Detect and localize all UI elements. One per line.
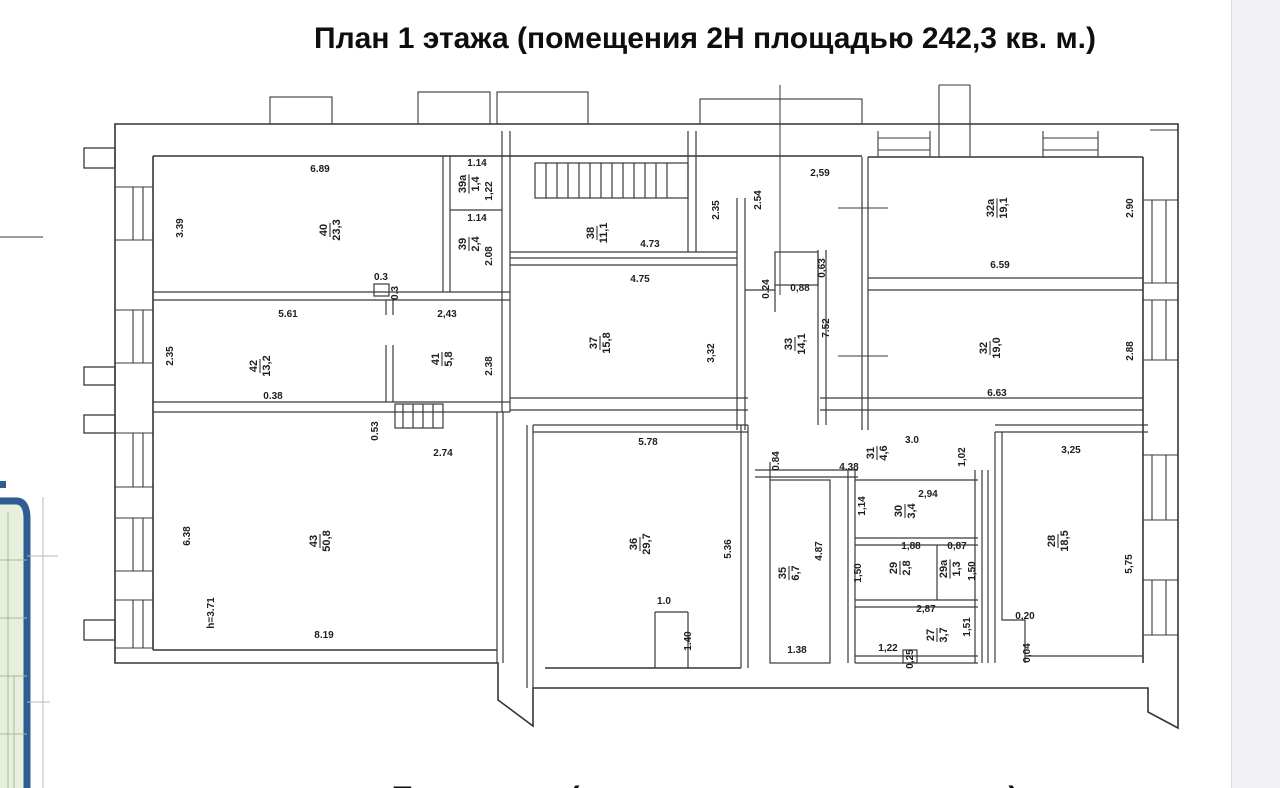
dimension-label: 2,43: [437, 309, 457, 320]
dimension-label: 5,75: [1124, 554, 1135, 574]
svg-text:14,1: 14,1: [796, 333, 808, 354]
svg-text:2,4: 2,4: [470, 235, 482, 251]
dimension-label: 1.0: [657, 596, 671, 607]
dimension-label: 2.74: [433, 448, 453, 459]
window-symbols: [115, 85, 1178, 648]
dimension-label: 4.73: [640, 239, 660, 250]
exterior-walls: [115, 124, 1178, 728]
adjacent-page-fragment: [0, 0, 70, 788]
staircase-hatch: [395, 163, 688, 428]
dimension-label: 0.24: [761, 279, 772, 299]
dimension-label: 5.61: [278, 309, 298, 320]
dimension-label: 5.78: [638, 437, 658, 448]
dimension-label: 6.89: [310, 164, 330, 175]
svg-text:1,4: 1,4: [470, 175, 482, 191]
dimension-label: h=3.71: [206, 597, 217, 629]
room-label: 3314,1: [783, 333, 808, 354]
svg-text:35: 35: [777, 567, 789, 579]
room-label: 356,7: [777, 565, 802, 580]
dimension-label: 0.38: [263, 391, 283, 402]
scanned-floor-plan-page: План 1 этажа (помещения 2Н площадью 242,…: [0, 0, 1280, 788]
dimension-label: 3.0: [905, 435, 919, 446]
svg-text:6,7: 6,7: [790, 565, 802, 580]
svg-text:29: 29: [888, 562, 900, 574]
dimension-label: 0,88: [790, 283, 810, 294]
dimension-label: 0,63: [817, 258, 828, 278]
dimension-label: 2.90: [1125, 198, 1136, 218]
svg-text:3,7: 3,7: [938, 627, 950, 642]
dimension-label: 2.88: [1125, 341, 1136, 361]
svg-text:3,4: 3,4: [906, 502, 918, 518]
dimension-label: 1,50: [853, 563, 864, 583]
svg-text:32а: 32а: [985, 198, 997, 217]
svg-text:18,5: 18,5: [1059, 530, 1071, 551]
dimension-label: 6.38: [182, 526, 193, 546]
room-label: 39а1,4: [457, 174, 482, 194]
room-label: 3219,0: [978, 337, 1003, 358]
room-label: 292,8: [888, 560, 913, 575]
svg-text:5,8: 5,8: [443, 351, 455, 366]
svg-text:23,3: 23,3: [331, 219, 343, 240]
svg-text:39а: 39а: [457, 174, 469, 193]
svg-text:50,8: 50,8: [321, 530, 333, 551]
dimension-label: 1,02: [957, 447, 968, 467]
dimension-label: 0,87: [947, 541, 967, 552]
room-label: 392,4: [457, 235, 482, 251]
dimension-label: 1.40: [683, 631, 694, 651]
room-label: 32а19,1: [985, 197, 1010, 218]
dimension-label: 1.38: [787, 645, 807, 656]
dimension-label: 3,25: [1061, 445, 1081, 456]
dimension-label: 2.35: [165, 346, 176, 366]
dimension-label: 6.63: [987, 388, 1007, 399]
room-label: 4350,8: [308, 530, 333, 551]
dimension-label: 2.54: [753, 190, 764, 210]
svg-text:37: 37: [588, 337, 600, 349]
room-label: 3811,1: [585, 223, 610, 244]
dimension-label: 1,50: [967, 561, 978, 581]
svg-text:19,0: 19,0: [991, 337, 1003, 358]
dimension-label: 1,14: [857, 496, 868, 516]
dimension-label: 1,22: [878, 643, 898, 654]
room-label: 3629,7: [628, 533, 653, 554]
svg-text:40: 40: [318, 224, 330, 236]
svg-text:15,8: 15,8: [601, 332, 613, 353]
dimension-label: 5.36: [723, 539, 734, 559]
dimension-label: 2,59: [810, 168, 830, 179]
dimension-label: 0.3: [390, 286, 401, 300]
svg-text:4,6: 4,6: [878, 445, 890, 460]
dimension-label: 0.3: [374, 272, 388, 283]
room-label: 4023,3: [318, 219, 343, 240]
svg-text:30: 30: [893, 505, 905, 517]
dimension-label: 1.14: [467, 213, 487, 224]
room-label: 29а1,3: [938, 559, 963, 579]
dimension-label: 0,04: [1022, 643, 1033, 663]
svg-text:38: 38: [585, 227, 597, 239]
dimension-label: 1,51: [962, 617, 973, 637]
dimension-label: 3.39: [175, 218, 186, 238]
floor-plan: 4023,339а1,4392,43811,13715,83314,132а19…: [0, 0, 1280, 788]
svg-text:43: 43: [308, 535, 320, 547]
dimension-label: 0,20: [1015, 611, 1035, 622]
room-label: 303,4: [893, 502, 918, 518]
dimension-label: 4.75: [630, 274, 650, 285]
dimension-label: 4.38: [839, 462, 859, 473]
svg-text:29,7: 29,7: [641, 533, 653, 554]
dimension-label: 0,25: [905, 649, 916, 669]
room-label: 415,8: [430, 351, 455, 366]
room-label: 314,6: [865, 445, 890, 460]
dimension-label: 0.53: [370, 421, 381, 441]
svg-text:41: 41: [430, 353, 442, 365]
dimension-label: 1.14: [467, 158, 487, 169]
dimension-labels: 6.893.390.30.31.141,221.142.084.734.752.…: [165, 158, 1136, 669]
room-label: 4213,2: [248, 355, 273, 376]
dimension-label: 2.38: [484, 356, 495, 376]
room-label: 3715,8: [588, 332, 613, 353]
dimension-label: 3,32: [706, 343, 717, 363]
dimension-label: 6.59: [990, 260, 1010, 271]
svg-text:28: 28: [1046, 535, 1058, 547]
svg-text:32: 32: [978, 342, 990, 354]
dimension-label: 1,88: [901, 541, 921, 552]
room-label: 273,7: [925, 627, 950, 642]
svg-text:33: 33: [783, 338, 795, 350]
svg-text:29а: 29а: [938, 559, 950, 578]
dimension-label: 7.52: [821, 318, 832, 338]
svg-text:36: 36: [628, 538, 640, 550]
svg-text:11,1: 11,1: [598, 223, 610, 244]
svg-text:39: 39: [457, 238, 469, 250]
dimension-label: 2,94: [918, 489, 938, 500]
svg-text:31: 31: [865, 447, 877, 459]
svg-text:13,2: 13,2: [261, 355, 273, 376]
room-label: 2818,5: [1046, 530, 1071, 551]
svg-text:42: 42: [248, 360, 260, 372]
svg-text:19,1: 19,1: [998, 197, 1010, 218]
svg-text:2,8: 2,8: [901, 560, 913, 575]
bottom-caption-partial: План этажа (помещения площадью кв. м.): [130, 781, 1280, 788]
svg-text:1,3: 1,3: [951, 561, 963, 576]
svg-text:27: 27: [925, 629, 937, 641]
dimension-label: 1,22: [484, 181, 495, 201]
dimension-label: 2.08: [484, 246, 495, 266]
dimension-label: 2,87: [916, 604, 936, 615]
dimension-label: 2.35: [711, 200, 722, 220]
dimension-label: 8.19: [314, 630, 334, 641]
dimension-label: 0.84: [771, 451, 782, 471]
dimension-label: 4.87: [814, 541, 825, 561]
